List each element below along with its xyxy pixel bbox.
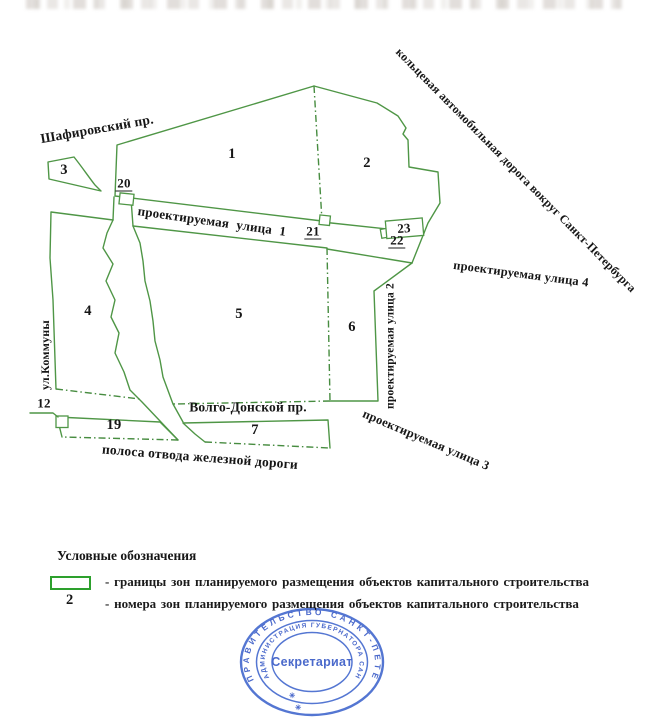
marker-label-21: 21	[304, 225, 321, 240]
zone-label-2: 2	[363, 156, 370, 171]
scanned-planning-map-page: 1 2 3 4 5 6 7 19 20 21 22 23 12 Шафировс…	[0, 0, 657, 725]
zone-label-4: 4	[84, 304, 91, 319]
zone-label-1: 1	[228, 147, 235, 162]
zone-7-bottom-edge	[205, 442, 330, 448]
street-label-street2: проектируемая улица 2	[385, 283, 397, 409]
marker-square-12	[56, 416, 68, 428]
corridor-left-edge	[113, 197, 114, 220]
zone-1-boundary	[115, 86, 322, 221]
legend-zone-number-symbol: 2	[66, 592, 73, 609]
zone-1-2-divider	[314, 86, 322, 221]
marker-label-20: 20	[115, 177, 132, 192]
zone-4-left-edge	[50, 212, 113, 389]
legend-item-boundaries: - границы зон планируемого размещения об…	[105, 574, 589, 590]
marker-12-connector	[30, 413, 58, 417]
zone-4-wavy-edge	[103, 220, 178, 440]
zone-label-3: 3	[60, 163, 67, 178]
official-seal: ПРАВИТЕЛЬСТВО САНКТ-ПЕТЕРБУРГА АДМИНИСТР…	[237, 604, 387, 722]
street1-end-edge	[412, 233, 424, 263]
zone-label-7: 7	[251, 423, 258, 438]
seal-separator-mark-1: ✳	[289, 691, 296, 700]
zone-6-boundary	[330, 263, 412, 401]
seal-separator-mark-2: ✳	[295, 703, 302, 712]
marker-square-20	[119, 193, 134, 205]
zone-5-6-divider	[327, 248, 330, 401]
seal-center-text: Секретариат	[271, 655, 352, 669]
street-label-kommuny: ул.Коммуны	[39, 320, 51, 390]
zone-label-5: 5	[235, 307, 242, 322]
zone-boundary-swatch	[50, 576, 91, 590]
zone-label-19: 19	[107, 418, 122, 433]
zone-4-bottom-edge	[56, 389, 140, 399]
marker-label-23: 23	[397, 221, 411, 235]
zone-label-6: 6	[348, 320, 355, 335]
zone-6-top-edge	[327, 249, 412, 263]
zones-map	[0, 0, 657, 520]
marker-label-12: 12	[37, 397, 50, 410]
street-label-volgo-donskoy: Волго-Донской пр.	[189, 400, 307, 414]
zone-2-boundary	[314, 86, 440, 233]
legend-title: Условные обозначения	[57, 548, 196, 564]
zone-3-boundary	[48, 157, 101, 191]
zone-5-wavy-edge	[133, 226, 183, 422]
zone-19-bottom-edge	[62, 437, 178, 440]
